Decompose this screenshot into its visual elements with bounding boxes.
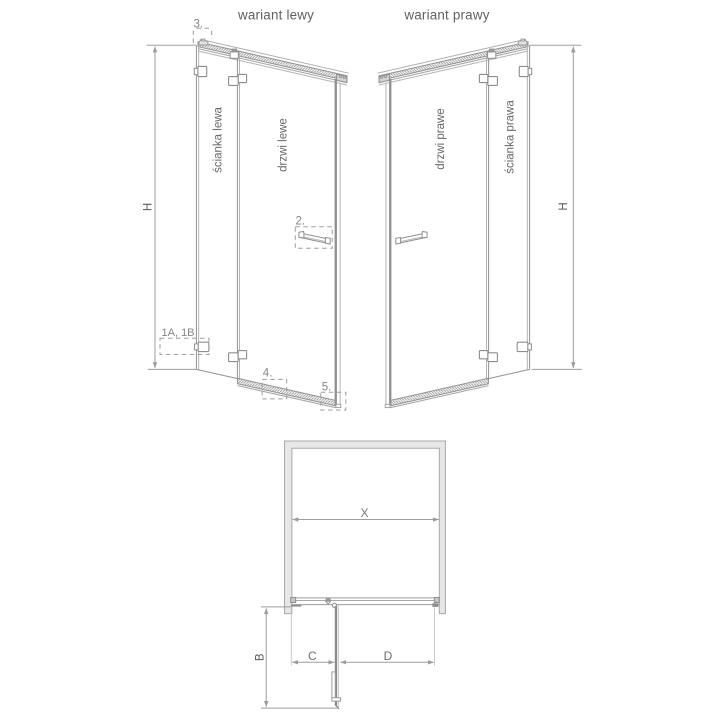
svg-text:drzwi prawe: drzwi prawe	[435, 108, 447, 169]
svg-text:ścianka lewa: ścianka lewa	[213, 106, 225, 172]
svg-text:drzwi lewe: drzwi lewe	[278, 118, 290, 172]
svg-text:H: H	[142, 203, 154, 211]
svg-text:X: X	[360, 506, 368, 520]
svg-text:C: C	[308, 649, 317, 663]
svg-text:ścianka prawa: ścianka prawa	[505, 100, 517, 174]
svg-text:wariant prawy: wariant prawy	[403, 8, 489, 23]
svg-text:4.: 4.	[263, 368, 273, 380]
svg-text:2.: 2.	[296, 216, 306, 228]
svg-text:wariant lewy: wariant lewy	[237, 8, 314, 23]
svg-text:H: H	[558, 202, 570, 210]
svg-text:B: B	[254, 653, 266, 661]
svg-text:5.: 5.	[322, 382, 332, 394]
svg-text:1A, 1B: 1A, 1B	[162, 327, 195, 339]
svg-text:D: D	[384, 649, 393, 663]
